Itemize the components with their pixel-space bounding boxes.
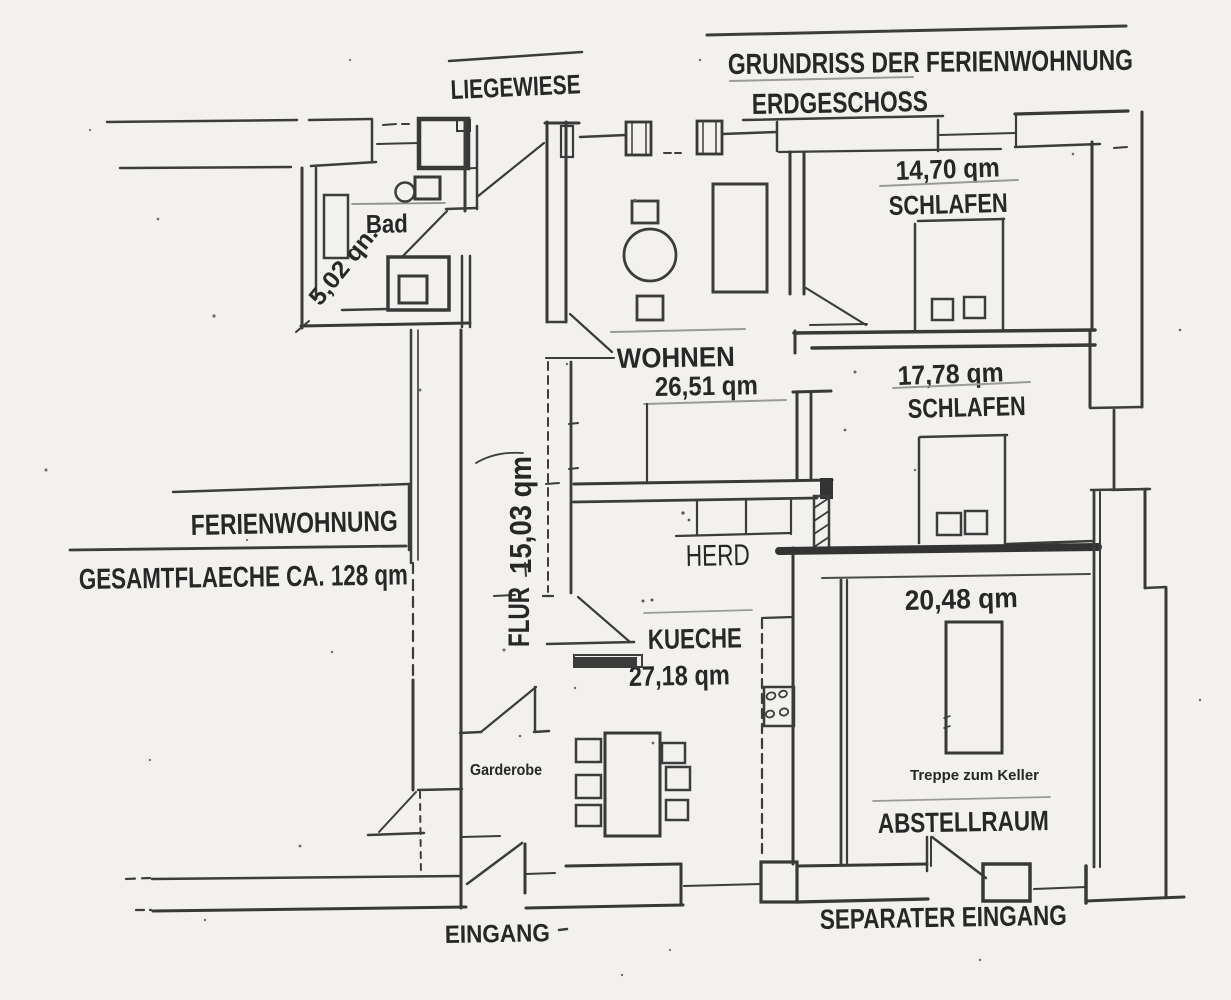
svg-text:Treppe zum Keller: Treppe zum Keller [910,767,1039,784]
svg-text:GESAMTFLAECHE CA. 128 qm: GESAMTFLAECHE CA. 128 qm [79,559,408,596]
svg-text:Garderobe: Garderobe [470,762,542,779]
svg-text:LIEGEWIESE: LIEGEWIESE [450,69,581,105]
svg-text:SCHLAFEN: SCHLAFEN [907,391,1026,424]
svg-text:FERIENWOHNUNG: FERIENWOHNUNG [190,506,398,542]
svg-text:HERD: HERD [686,539,751,573]
svg-text:KUECHE: KUECHE [648,622,743,655]
svg-text:EINGANG: EINGANG [445,919,550,949]
svg-text:GRUNDRISS DER FERIENWOHNUNG: GRUNDRISS DER FERIENWOHNUNG [728,45,1133,81]
svg-text:SCHLAFEN: SCHLAFEN [888,188,1008,221]
svg-text:15,03 qm: 15,03 qm [503,456,538,574]
svg-text:WOHNEN: WOHNEN [617,341,736,374]
svg-text:SEPARATER EINGANG: SEPARATER EINGANG [820,900,1068,935]
svg-text:FLUR: FLUR [503,587,536,647]
svg-text:20,48 qm: 20,48 qm [904,582,1018,616]
svg-text:27,18 qm: 27,18 qm [629,659,731,692]
svg-text:ABSTELLRAUM: ABSTELLRAUM [878,805,1050,839]
svg-text:26,51 qm: 26,51 qm [655,370,759,402]
